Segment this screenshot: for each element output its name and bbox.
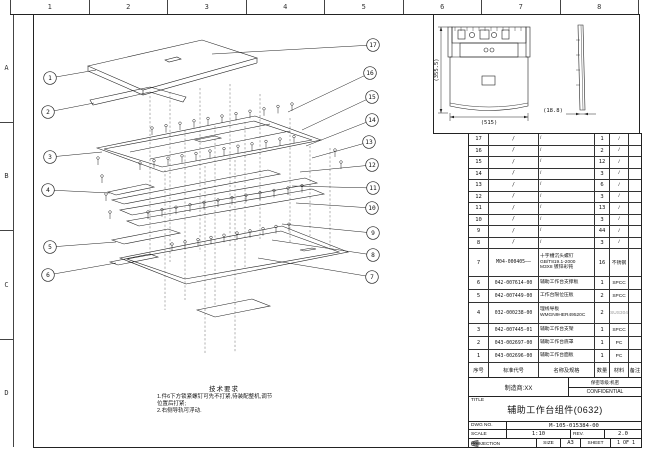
cell-no: 8: [469, 238, 489, 250]
cell-desc: /: [539, 215, 595, 227]
cell-no: 11: [469, 203, 489, 215]
cell-material: /: [610, 180, 629, 192]
cell-qty: 3: [595, 238, 610, 250]
cell-code: 042-007614-00: [489, 277, 539, 290]
ruler-col-3: 3: [168, 0, 247, 14]
svg-text:14: 14: [368, 117, 376, 124]
cell-code: /: [489, 215, 539, 227]
cell-code: /: [489, 157, 539, 169]
ruler-col-7: 7: [482, 0, 561, 14]
svg-text:15: 15: [368, 94, 376, 101]
cell-desc: 十字槽沉头螺钉 GB/T819.1-2000 M3X8 镀锌彩钝: [539, 249, 595, 277]
cell-qty: 3: [595, 215, 610, 227]
cell-code: /: [489, 226, 539, 238]
balloon-callouts: 1234561716151413121110987: [42, 39, 380, 284]
secrecy-column: 保密等级:机密 CONFIDENTIAL: [569, 378, 641, 396]
cell-remark: [629, 192, 641, 204]
cell-material: /: [610, 203, 629, 215]
cell-material: 不锈钢: [610, 249, 629, 277]
cell-qty: 13: [595, 203, 610, 215]
cell-material: /: [610, 146, 629, 158]
title-row: TITLE 辅助工作台组件(0632): [469, 396, 641, 421]
svg-text:11: 11: [369, 185, 377, 192]
cell-remark: [629, 146, 641, 158]
cell-code: /: [489, 238, 539, 250]
title-label: TITLE: [471, 398, 484, 403]
cell-no: 16: [469, 146, 489, 158]
sheet-value: 1 OF 1: [611, 439, 641, 447]
column-header: 材料: [610, 363, 629, 377]
cell-qty: 12: [595, 157, 610, 169]
notes-line: 2.右侧导轨可浮动.: [157, 408, 291, 415]
technical-notes: 技术要求 1.件6下方锁紧螺钉可先不打紧,待装配整机,调节 位置后打紧; 2.右…: [157, 383, 291, 415]
cell-desc: /: [539, 146, 595, 158]
cell-desc: /: [539, 169, 595, 181]
rev-label: REV.: [571, 430, 605, 438]
cell-material: /: [610, 192, 629, 204]
title-block: 制造商:XX 保密等级:机密 CONFIDENTIAL TITLE 辅助工作台组…: [468, 377, 642, 448]
dim-depth: (18.8): [543, 108, 563, 114]
dwg-no-row: DWG NO. M-105-015384-00: [469, 421, 641, 429]
parts-table: 17//1/16//2/15//12/14//3/13//6/12//3/11/…: [468, 133, 642, 378]
cell-qty: 16: [595, 249, 610, 277]
dwg-no-value: M-105-015384-00: [507, 422, 641, 429]
drawing-title: 辅助工作台组件(0632): [469, 403, 641, 416]
cell-remark: [629, 169, 641, 181]
table-row: 序号标准代号名称及规格数量材料备注: [469, 363, 641, 377]
table-row: 13//6/: [469, 180, 641, 192]
table-row: 15//12/: [469, 157, 641, 169]
cell-qty: 1: [595, 134, 610, 146]
table-row: 11//13/: [469, 203, 641, 215]
cell-code: M04-000405——: [489, 249, 539, 277]
cell-material: SPCC: [610, 290, 629, 303]
cell-desc: /: [539, 226, 595, 238]
cell-no: 13: [469, 180, 489, 192]
cell-desc: 理线导板 WMGN9HER49520C: [539, 303, 595, 324]
table-row: 8//3/: [469, 238, 641, 250]
manufacturer-row: 制造商:XX 保密等级:机密 CONFIDENTIAL: [469, 378, 641, 396]
projection-cone-icon: [471, 440, 479, 447]
cell-code: 043-002696-00: [489, 350, 539, 363]
cell-no: 10: [469, 215, 489, 227]
ruler-row-D: D: [0, 340, 13, 448]
cell-material: /: [610, 169, 629, 181]
sheet-label: SHEET: [581, 439, 611, 447]
cell-code: /: [489, 180, 539, 192]
cell-material: SPCC: [610, 324, 629, 337]
table-row: 1043-002696-00辅助工作台面板1PC: [469, 350, 641, 363]
size-label: SIZE: [537, 439, 561, 447]
svg-text:4: 4: [46, 187, 50, 194]
cell-material: PC: [610, 337, 629, 350]
cell-remark: [629, 215, 641, 227]
svg-text:9: 9: [371, 230, 375, 237]
cell-material: /: [610, 238, 629, 250]
cell-remark: [629, 277, 641, 290]
table-row: 9//44/: [469, 226, 641, 238]
svg-text:3: 3: [48, 154, 52, 161]
cell-material: /: [610, 157, 629, 169]
cell-code: 032-000238-00: [489, 303, 539, 324]
projection-row: PROJECTION SIZE A3 SHEET 1 OF 1: [469, 438, 641, 447]
table-row: 2043-002697-00辅助工作台底罩1PC: [469, 337, 641, 350]
cell-no: 6: [469, 277, 489, 290]
svg-text:17: 17: [369, 42, 377, 49]
cell-material: SUS304: [610, 303, 629, 324]
ruler-row-A: A: [0, 14, 13, 123]
ruler-col-5: 5: [325, 0, 404, 14]
cell-material: SPCC: [610, 277, 629, 290]
projection-cell: PROJECTION: [469, 439, 537, 447]
cell-no: 2: [469, 337, 489, 350]
cell-code: /: [489, 146, 539, 158]
ruler-row-B: B: [0, 123, 13, 232]
cell-no: 9: [469, 226, 489, 238]
table-row: 6042-007614-00辅助工作台支撑板1SPCC: [469, 277, 641, 290]
cell-qty: 1: [595, 350, 610, 363]
svg-text:12: 12: [368, 162, 376, 169]
cell-remark: [629, 303, 641, 324]
cell-desc: /: [539, 238, 595, 250]
cell-material: PC: [610, 350, 629, 363]
scale-row: SCALE 1:10 REV. 2.0: [469, 429, 641, 438]
cell-remark: [629, 226, 641, 238]
top-ruler: 12345678: [10, 0, 639, 14]
column-header: 标准代号: [489, 363, 539, 377]
cell-qty: 6: [595, 180, 610, 192]
cell-no: 5: [469, 290, 489, 303]
manufacturer-cell: 制造商:XX: [469, 378, 569, 396]
cell-remark: [629, 203, 641, 215]
size-value: A3: [561, 439, 581, 447]
screw-fasteners: [97, 103, 343, 251]
cell-material: /: [610, 226, 629, 238]
svg-text:1: 1: [48, 75, 52, 82]
cell-desc: /: [539, 134, 595, 146]
ruler-col-2: 2: [90, 0, 169, 14]
cell-code: /: [489, 203, 539, 215]
ruler-col-6: 6: [404, 0, 483, 14]
ruler-col-4: 4: [247, 0, 326, 14]
cell-code: 042-007445-01: [489, 324, 539, 337]
drawing-sheet: 12345678 ABCD 1234561716151413121110987 …: [0, 0, 647, 455]
table-row: 4032-000238-00理线导板 WMGN9HER49520C2SUS304: [469, 303, 641, 324]
cell-code: /: [489, 192, 539, 204]
cell-qty: 2: [595, 146, 610, 158]
ruler-row-C: C: [0, 231, 13, 340]
cell-no: 17: [469, 134, 489, 146]
cell-no: 3: [469, 324, 489, 337]
cell-remark: [629, 324, 641, 337]
dimensions: (355.5)(515)(18.8): [434, 27, 596, 126]
table-row: 14//3/: [469, 169, 641, 181]
orthographic-views: (355.5)(515)(18.8): [433, 14, 640, 133]
cell-remark: [629, 180, 641, 192]
cell-remark: [629, 157, 641, 169]
cell-qty: 1: [595, 337, 610, 350]
cell-material: /: [610, 134, 629, 146]
svg-text:8: 8: [371, 252, 375, 259]
cell-qty: 44: [595, 226, 610, 238]
notes-title: 技术要求: [157, 383, 291, 393]
column-header: 名称及规格: [539, 363, 595, 377]
cell-no: 4: [469, 303, 489, 324]
cell-desc: 辅助工作台面板: [539, 350, 595, 363]
cell-no: 15: [469, 157, 489, 169]
table-row: 5042-007449-00工作台限位压板2SPCC: [469, 290, 641, 303]
svg-text:10: 10: [368, 205, 376, 212]
ruler-col-8: 8: [561, 0, 640, 14]
front-view: [448, 27, 530, 111]
cell-code: /: [489, 169, 539, 181]
table-row: 10//3/: [469, 215, 641, 227]
cell-qty: 1: [595, 277, 610, 290]
cell-remark: [629, 249, 641, 277]
side-view: [576, 25, 585, 110]
svg-text:6: 6: [46, 272, 50, 279]
cell-qty: 3: [595, 169, 610, 181]
cell-desc: 工作台限位压板: [539, 290, 595, 303]
cell-remark: [629, 290, 641, 303]
left-ruler: ABCD: [0, 14, 14, 447]
cell-no: 12: [469, 192, 489, 204]
cell-qty: 2: [595, 290, 610, 303]
rev-value: 2.0: [605, 430, 641, 438]
scale-value: 1:10: [507, 430, 571, 438]
table-row: 3042-007445-01辅助工作台支架1SPCC: [469, 324, 641, 337]
table-row: 7M04-000405——十字槽沉头螺钉 GB/T819.1-2000 M3X8…: [469, 249, 641, 277]
cell-qty: 3: [595, 192, 610, 204]
svg-text:5: 5: [48, 244, 52, 251]
confidential-label: CONFIDENTIAL: [569, 388, 641, 396]
column-header: 数量: [595, 363, 610, 377]
dim-width: (515): [481, 120, 498, 126]
scale-label: SCALE: [469, 430, 507, 438]
cell-remark: [629, 337, 641, 350]
cell-desc: /: [539, 180, 595, 192]
cell-remark: [629, 134, 641, 146]
cell-desc: /: [539, 192, 595, 204]
cell-material: /: [610, 215, 629, 227]
cell-code: /: [489, 134, 539, 146]
svg-text:16: 16: [366, 70, 374, 77]
cell-qty: 1: [595, 324, 610, 337]
svg-text:7: 7: [370, 274, 374, 281]
cell-desc: /: [539, 157, 595, 169]
cell-no: 14: [469, 169, 489, 181]
column-header: 备注: [629, 363, 641, 377]
secrecy-label: 保密等级:机密: [569, 378, 641, 388]
cell-desc: 辅助工作台底罩: [539, 337, 595, 350]
dim-height: (355.5): [434, 58, 440, 81]
cell-code: 042-007449-00: [489, 290, 539, 303]
cell-desc: /: [539, 203, 595, 215]
assembly-geometry: [88, 40, 348, 317]
table-row: 16//2/: [469, 146, 641, 158]
table-row: 12//3/: [469, 192, 641, 204]
cell-no: 1: [469, 350, 489, 363]
cell-code: 043-002697-00: [489, 337, 539, 350]
column-header: 序号: [469, 363, 489, 377]
ruler-baseline: [10, 14, 33, 15]
cell-desc: 辅助工作台支架: [539, 324, 595, 337]
cell-desc: 辅助工作台支撑板: [539, 277, 595, 290]
cell-remark: [629, 350, 641, 363]
dwg-no-label: DWG NO.: [469, 422, 507, 429]
ruler-col-1: 1: [10, 0, 90, 14]
svg-text:13: 13: [365, 139, 373, 146]
cell-no: 7: [469, 249, 489, 277]
cell-qty: 2: [595, 303, 610, 324]
svg-text:2: 2: [46, 109, 50, 116]
table-row: 17//1/: [469, 134, 641, 146]
cell-remark: [629, 238, 641, 250]
